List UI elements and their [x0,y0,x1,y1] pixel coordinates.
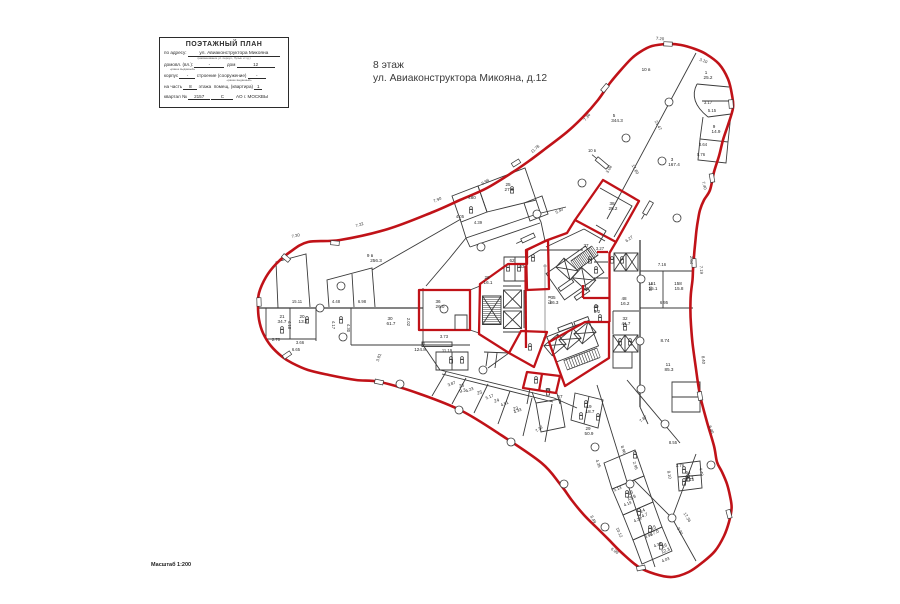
svg-text:6.99: 6.99 [610,546,620,555]
svg-text:4.17: 4.17 [331,321,336,330]
svg-text:3.73: 3.73 [440,334,449,339]
svg-text:4.23: 4.23 [465,386,475,394]
svg-text:17.60: 17.60 [631,163,641,175]
svg-text:8.40: 8.40 [701,356,707,365]
svg-text:7.90: 7.90 [433,195,443,203]
svg-text:7.22: 7.22 [355,221,365,228]
svg-text:167.4: 167.4 [668,162,680,167]
svg-text:4.30: 4.30 [346,324,351,333]
svg-text:3.15: 3.15 [686,477,695,482]
svg-text:28.2: 28.2 [609,206,618,211]
svg-text:3.81: 3.81 [375,352,383,362]
svg-text:4.19: 4.19 [623,500,633,508]
svg-text:7.36: 7.36 [582,112,591,122]
svg-text:7.20: 7.20 [656,36,665,42]
svg-text:26.0: 26.0 [436,304,445,309]
svg-text:15.8: 15.8 [675,286,684,291]
svg-text:62: 62 [509,258,515,263]
svg-text:18.7: 18.7 [586,409,595,414]
svg-text:256.3: 256.3 [370,258,382,263]
svg-text:5.98: 5.98 [480,177,490,186]
svg-text:6.95: 6.95 [660,300,669,305]
svg-text:8.10: 8.10 [666,470,672,480]
svg-text:63: 63 [519,264,525,269]
svg-text:4.05: 4.05 [456,214,465,219]
svg-text:61.7: 61.7 [387,321,396,326]
svg-text:6.98: 6.98 [358,299,367,304]
svg-text:4.35: 4.35 [595,459,603,469]
svg-text:10 в: 10 в [642,67,651,72]
svg-text:9.91: 9.91 [676,526,685,536]
svg-text:15.11: 15.11 [292,299,303,304]
svg-text:17.36: 17.36 [682,511,692,523]
svg-text:7.19: 7.19 [699,266,705,275]
svg-text:6.65: 6.65 [292,347,301,352]
svg-text:124.8: 124.8 [414,347,426,352]
svg-text:8.73: 8.73 [547,296,552,305]
svg-text:8.2: 8.2 [594,309,601,314]
svg-text:85.3: 85.3 [665,367,674,372]
svg-text:6.27: 6.27 [624,234,634,243]
svg-text:7.16: 7.16 [658,262,667,267]
svg-text:11.19: 11.19 [442,348,453,353]
svg-text:37: 37 [583,243,589,248]
svg-text:4.38: 4.38 [653,541,663,549]
svg-text:2.54: 2.54 [689,256,694,265]
svg-text:3.27: 3.27 [596,246,605,251]
svg-text:50.9: 50.9 [585,431,594,436]
svg-text:27.0: 27.0 [505,187,514,192]
svg-text:25: 25 [476,389,483,395]
svg-text:8.74: 8.74 [661,338,670,343]
svg-text:3.87: 3.87 [447,380,457,388]
svg-text:4.18: 4.18 [287,321,292,330]
svg-text:480: 480 [468,195,476,200]
svg-text:3.66: 3.66 [296,340,305,345]
svg-text:7.30: 7.30 [291,232,301,239]
svg-text:7.40: 7.40 [701,181,708,191]
svg-text:56: 56 [545,387,551,392]
svg-text:10 в: 10 в [588,148,597,153]
svg-text:2.95: 2.95 [632,461,639,471]
svg-text:3.90: 3.90 [648,283,653,292]
svg-text:41.7: 41.7 [622,321,631,326]
svg-text:13.5: 13.5 [299,319,308,324]
svg-text:16.2: 16.2 [621,301,630,306]
svg-text:3.76: 3.76 [676,463,685,468]
svg-text:14.9: 14.9 [712,129,721,134]
svg-text:4.39: 4.39 [474,220,483,225]
svg-text:4.48: 4.48 [332,299,341,304]
svg-text:34.7: 34.7 [278,319,287,324]
svg-text:1: 1 [423,341,426,346]
svg-text:57: 57 [557,394,563,399]
svg-text:3.10: 3.10 [699,57,709,65]
svg-text:3.64: 3.64 [699,142,708,147]
svg-text:10.12: 10.12 [615,527,624,539]
svg-text:2.02: 2.02 [406,318,411,327]
svg-text:5.15: 5.15 [708,108,717,113]
svg-text:3.17: 3.17 [704,100,713,105]
svg-text:344.3: 344.3 [611,118,623,123]
svg-text:16.1: 16.1 [484,280,493,285]
svg-text:25.2: 25.2 [704,75,713,80]
svg-text:8.55: 8.55 [669,440,678,445]
svg-text:4.03: 4.03 [661,556,671,564]
svg-text:2.70: 2.70 [272,337,281,342]
svg-text:0.76: 0.76 [697,152,706,157]
